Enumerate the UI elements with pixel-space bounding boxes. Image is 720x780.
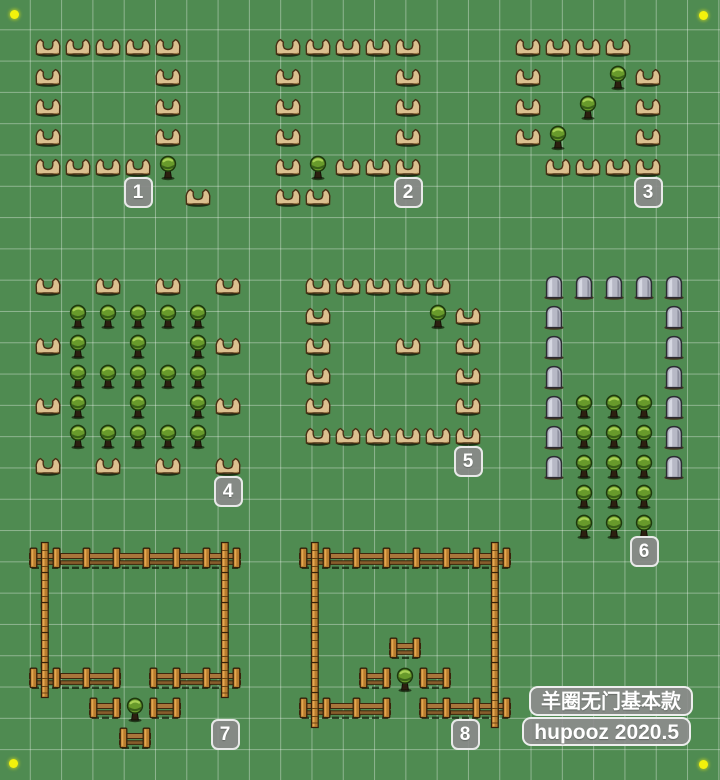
hardwood-fence-icon xyxy=(93,452,123,482)
hardwood-fence-icon xyxy=(453,302,483,332)
hardwood-fence-icon xyxy=(363,272,393,302)
hardwood-fence-icon xyxy=(63,33,93,63)
hardwood-fence-icon xyxy=(273,183,303,213)
hardwood-fence-icon xyxy=(333,272,363,302)
hardwood-fence-icon xyxy=(573,153,603,183)
bush-icon xyxy=(183,422,213,452)
hardwood-fence-icon xyxy=(63,153,93,183)
wood-post-icon xyxy=(300,575,330,605)
hardwood-fence-icon xyxy=(33,272,63,302)
bush-icon xyxy=(599,392,629,422)
hardwood-fence-icon xyxy=(393,63,423,93)
wood-rail-fence-icon xyxy=(330,695,360,725)
bush-icon xyxy=(153,302,183,332)
hardwood-fence-icon xyxy=(573,33,603,63)
hardwood-fence-icon xyxy=(273,93,303,123)
wood-rail-fence-icon xyxy=(360,545,390,575)
hardwood-fence-icon xyxy=(423,422,453,452)
bush-icon xyxy=(63,392,93,422)
wood-post-icon xyxy=(480,575,510,605)
hardwood-fence-icon xyxy=(393,123,423,153)
hardwood-fence-icon xyxy=(33,93,63,123)
bush-icon xyxy=(183,392,213,422)
hardwood-fence-icon xyxy=(363,33,393,63)
corner-marker-dot xyxy=(699,760,708,769)
stone-fence-icon xyxy=(629,272,659,302)
bush-icon xyxy=(303,153,333,183)
watermark-author: hupooz 2020.5 xyxy=(522,717,691,746)
wood-rail-fence-end-icon xyxy=(360,665,390,695)
hardwood-fence-icon xyxy=(513,123,543,153)
bush-icon xyxy=(123,302,153,332)
wood-rail-fence-icon xyxy=(480,545,510,575)
hardwood-fence-icon xyxy=(183,183,213,213)
hardwood-fence-icon xyxy=(513,63,543,93)
wood-post-icon xyxy=(30,665,60,695)
stone-fence-icon xyxy=(659,422,689,452)
bush-icon xyxy=(120,695,150,725)
wood-post-icon xyxy=(480,545,510,575)
hardwood-fence-icon xyxy=(153,93,183,123)
wood-rail-fence-icon xyxy=(120,545,150,575)
bush-icon xyxy=(183,302,213,332)
wood-rail-fence-icon xyxy=(210,545,240,575)
wood-post-icon xyxy=(300,695,330,725)
hardwood-fence-icon xyxy=(273,63,303,93)
hardwood-fence-icon xyxy=(393,332,423,362)
wood-post-icon xyxy=(210,635,240,665)
stone-fence-icon xyxy=(539,422,569,452)
hardwood-fence-icon xyxy=(153,33,183,63)
bush-icon xyxy=(93,302,123,332)
hardwood-fence-icon xyxy=(393,272,423,302)
hardwood-fence-icon xyxy=(333,33,363,63)
wood-rail-fence-end-icon xyxy=(420,665,450,695)
bush-icon xyxy=(569,422,599,452)
bush-icon xyxy=(599,512,629,542)
stone-fence-icon xyxy=(539,272,569,302)
hardwood-fence-icon xyxy=(363,422,393,452)
stone-fence-icon xyxy=(659,362,689,392)
wood-rail-fence-end-icon xyxy=(300,545,330,575)
wood-rail-fence-icon xyxy=(60,665,90,695)
bush-icon xyxy=(629,452,659,482)
stone-fence-icon xyxy=(659,302,689,332)
hardwood-fence-icon xyxy=(423,272,453,302)
wood-post-icon xyxy=(480,605,510,635)
layout-number-badge: 6 xyxy=(630,536,659,567)
wood-post-icon xyxy=(210,665,240,695)
hardwood-fence-icon xyxy=(603,153,633,183)
wood-rail-fence-icon xyxy=(330,545,360,575)
wood-post-icon xyxy=(30,575,60,605)
bush-icon xyxy=(390,665,420,695)
bush-icon xyxy=(93,362,123,392)
bush-icon xyxy=(63,302,93,332)
bush-icon xyxy=(153,422,183,452)
bush-icon xyxy=(569,392,599,422)
hardwood-fence-icon xyxy=(543,153,573,183)
layout-number-badge: 7 xyxy=(211,719,240,750)
layout-number-badge: 1 xyxy=(124,177,153,208)
bush-icon xyxy=(123,422,153,452)
bush-icon xyxy=(599,482,629,512)
hardwood-fence-icon xyxy=(33,452,63,482)
watermark-title: 羊圈无门基本款 xyxy=(529,686,693,716)
bush-icon xyxy=(123,392,153,422)
hardwood-fence-icon xyxy=(213,272,243,302)
hardwood-fence-icon xyxy=(303,392,333,422)
bush-icon xyxy=(183,332,213,362)
wood-rail-fence-icon xyxy=(90,545,120,575)
hardwood-fence-icon xyxy=(33,63,63,93)
stone-fence-icon xyxy=(539,302,569,332)
wood-post-icon xyxy=(30,635,60,665)
wood-rail-fence-icon xyxy=(210,665,240,695)
bush-icon xyxy=(569,512,599,542)
bush-icon xyxy=(569,452,599,482)
hardwood-fence-icon xyxy=(33,123,63,153)
farm-planner-canvas: 羊圈无门基本款 hupooz 2020.5 12345678 xyxy=(0,0,720,780)
bush-icon xyxy=(629,482,659,512)
wood-rail-fence-icon xyxy=(360,695,390,725)
hardwood-fence-icon xyxy=(603,33,633,63)
hardwood-fence-icon xyxy=(93,153,123,183)
hardwood-fence-icon xyxy=(33,332,63,362)
wood-rail-fence-end-icon xyxy=(30,545,60,575)
hardwood-fence-icon xyxy=(633,93,663,123)
wood-post-icon xyxy=(30,545,60,575)
wood-post-icon xyxy=(480,635,510,665)
bush-icon xyxy=(629,422,659,452)
stone-fence-icon xyxy=(539,362,569,392)
bush-icon xyxy=(599,452,629,482)
bush-icon xyxy=(123,332,153,362)
hardwood-fence-icon xyxy=(303,302,333,332)
hardwood-fence-icon xyxy=(543,33,573,63)
hardwood-fence-icon xyxy=(453,332,483,362)
hardwood-fence-icon xyxy=(393,93,423,123)
wood-rail-fence-end-icon xyxy=(300,695,330,725)
bush-icon xyxy=(63,362,93,392)
wood-rail-fence-icon xyxy=(150,545,180,575)
bush-icon xyxy=(569,482,599,512)
hardwood-fence-icon xyxy=(213,392,243,422)
wood-post-icon xyxy=(210,605,240,635)
wood-rail-fence-end-icon xyxy=(90,695,120,725)
bush-icon xyxy=(63,422,93,452)
hardwood-fence-icon xyxy=(363,153,393,183)
wood-post-icon xyxy=(480,695,510,725)
corner-marker-dot xyxy=(9,759,18,768)
hardwood-fence-icon xyxy=(93,272,123,302)
hardwood-fence-icon xyxy=(153,123,183,153)
hardwood-fence-icon xyxy=(303,33,333,63)
bush-icon xyxy=(153,153,183,183)
stone-fence-icon xyxy=(659,272,689,302)
bush-icon xyxy=(423,302,453,332)
layout-number-badge: 8 xyxy=(451,719,480,750)
hardwood-fence-icon xyxy=(303,422,333,452)
layout-number-badge: 4 xyxy=(214,476,243,507)
wood-rail-fence-end-icon xyxy=(420,695,450,725)
stone-fence-icon xyxy=(539,332,569,362)
bush-icon xyxy=(603,63,633,93)
hardwood-fence-icon xyxy=(273,123,303,153)
bush-icon xyxy=(573,93,603,123)
hardwood-fence-icon xyxy=(273,153,303,183)
hardwood-fence-icon xyxy=(153,63,183,93)
hardwood-fence-icon xyxy=(333,153,363,183)
hardwood-fence-icon xyxy=(273,33,303,63)
wood-post-icon xyxy=(300,635,330,665)
bush-icon xyxy=(629,392,659,422)
hardwood-fence-icon xyxy=(513,93,543,123)
hardwood-fence-icon xyxy=(513,33,543,63)
wood-rail-fence-icon xyxy=(90,665,120,695)
bush-icon xyxy=(123,362,153,392)
hardwood-fence-icon xyxy=(33,33,63,63)
hardwood-fence-icon xyxy=(303,272,333,302)
wood-rail-fence-end-icon xyxy=(150,695,180,725)
wood-rail-fence-icon xyxy=(390,545,420,575)
hardwood-fence-icon xyxy=(33,392,63,422)
hardwood-fence-icon xyxy=(633,63,663,93)
stone-fence-icon xyxy=(539,452,569,482)
wood-rail-fence-icon xyxy=(480,695,510,725)
wood-rail-fence-icon xyxy=(60,545,90,575)
stone-fence-icon xyxy=(659,392,689,422)
wood-post-icon xyxy=(210,575,240,605)
wood-rail-fence-end-icon xyxy=(390,635,420,665)
bush-icon xyxy=(183,362,213,392)
hardwood-fence-icon xyxy=(633,123,663,153)
hardwood-fence-icon xyxy=(393,33,423,63)
stone-fence-icon xyxy=(659,452,689,482)
wood-post-icon xyxy=(210,545,240,575)
hardwood-fence-icon xyxy=(303,362,333,392)
wood-post-icon xyxy=(300,545,330,575)
bush-icon xyxy=(63,332,93,362)
bush-icon xyxy=(153,362,183,392)
hardwood-fence-icon xyxy=(153,452,183,482)
corner-marker-dot xyxy=(10,10,19,19)
stone-fence-icon xyxy=(569,272,599,302)
stone-fence-icon xyxy=(659,332,689,362)
bush-icon xyxy=(543,123,573,153)
wood-post-icon xyxy=(480,665,510,695)
wood-post-icon xyxy=(300,665,330,695)
corner-marker-dot xyxy=(699,11,708,20)
wood-rail-fence-icon xyxy=(450,545,480,575)
bush-icon xyxy=(599,422,629,452)
hardwood-fence-icon xyxy=(213,332,243,362)
wood-rail-fence-icon xyxy=(180,665,210,695)
wood-rail-fence-icon xyxy=(180,545,210,575)
stone-fence-icon xyxy=(539,392,569,422)
wood-rail-fence-end-icon xyxy=(150,665,180,695)
hardwood-fence-icon xyxy=(333,422,363,452)
hardwood-fence-icon xyxy=(303,183,333,213)
layout-number-badge: 2 xyxy=(394,177,423,208)
bush-icon xyxy=(93,422,123,452)
wood-post-icon xyxy=(300,605,330,635)
wood-rail-fence-end-icon xyxy=(120,725,150,755)
layout-number-badge: 3 xyxy=(634,177,663,208)
wood-rail-fence-icon xyxy=(420,545,450,575)
hardwood-fence-icon xyxy=(123,33,153,63)
hardwood-fence-icon xyxy=(93,33,123,63)
wood-rail-fence-end-icon xyxy=(30,665,60,695)
stone-fence-icon xyxy=(599,272,629,302)
hardwood-fence-icon xyxy=(453,392,483,422)
hardwood-fence-icon xyxy=(393,422,423,452)
wood-post-icon xyxy=(30,605,60,635)
layout-number-badge: 5 xyxy=(454,446,483,477)
hardwood-fence-icon xyxy=(453,362,483,392)
hardwood-fence-icon xyxy=(153,272,183,302)
hardwood-fence-icon xyxy=(33,153,63,183)
hardwood-fence-icon xyxy=(303,332,333,362)
